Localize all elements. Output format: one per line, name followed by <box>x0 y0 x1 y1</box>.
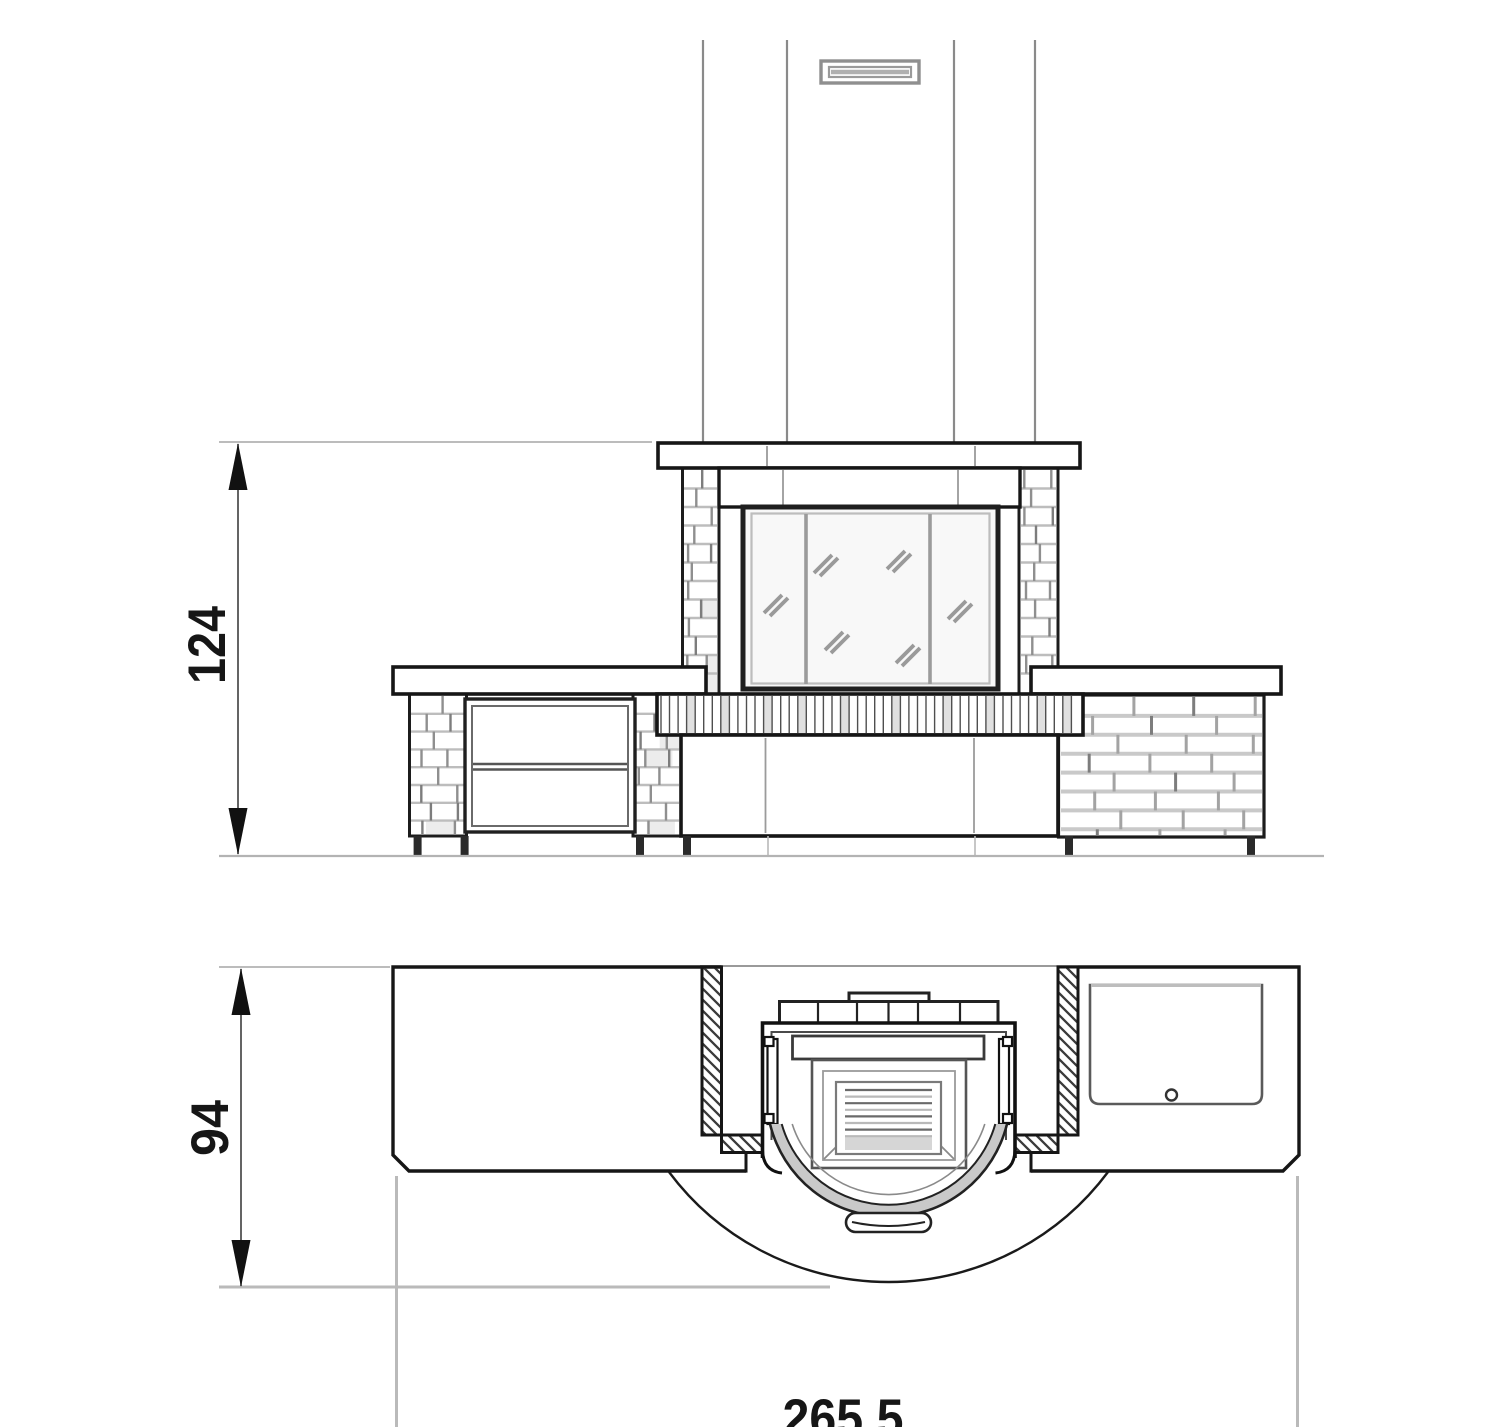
svg-text:265.5: 265.5 <box>783 1389 904 1427</box>
svg-text:124: 124 <box>178 606 237 684</box>
svg-text:94: 94 <box>181 1100 240 1156</box>
